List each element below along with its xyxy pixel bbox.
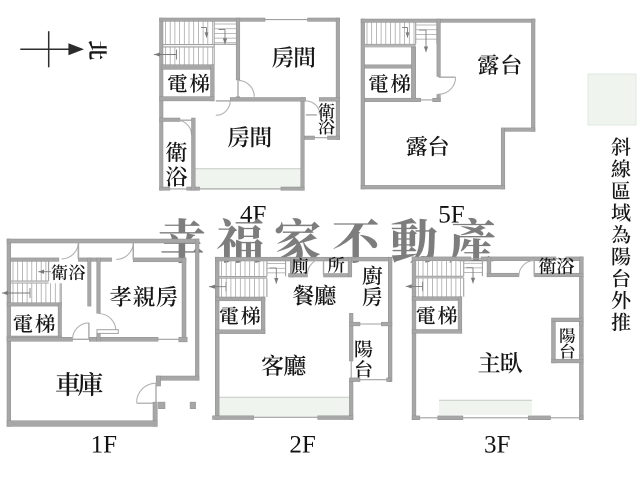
svg-text:1F: 1F bbox=[91, 432, 117, 459]
svg-text:2F: 2F bbox=[289, 432, 315, 459]
svg-text:4F: 4F bbox=[240, 202, 266, 229]
svg-text:3F: 3F bbox=[484, 432, 510, 459]
